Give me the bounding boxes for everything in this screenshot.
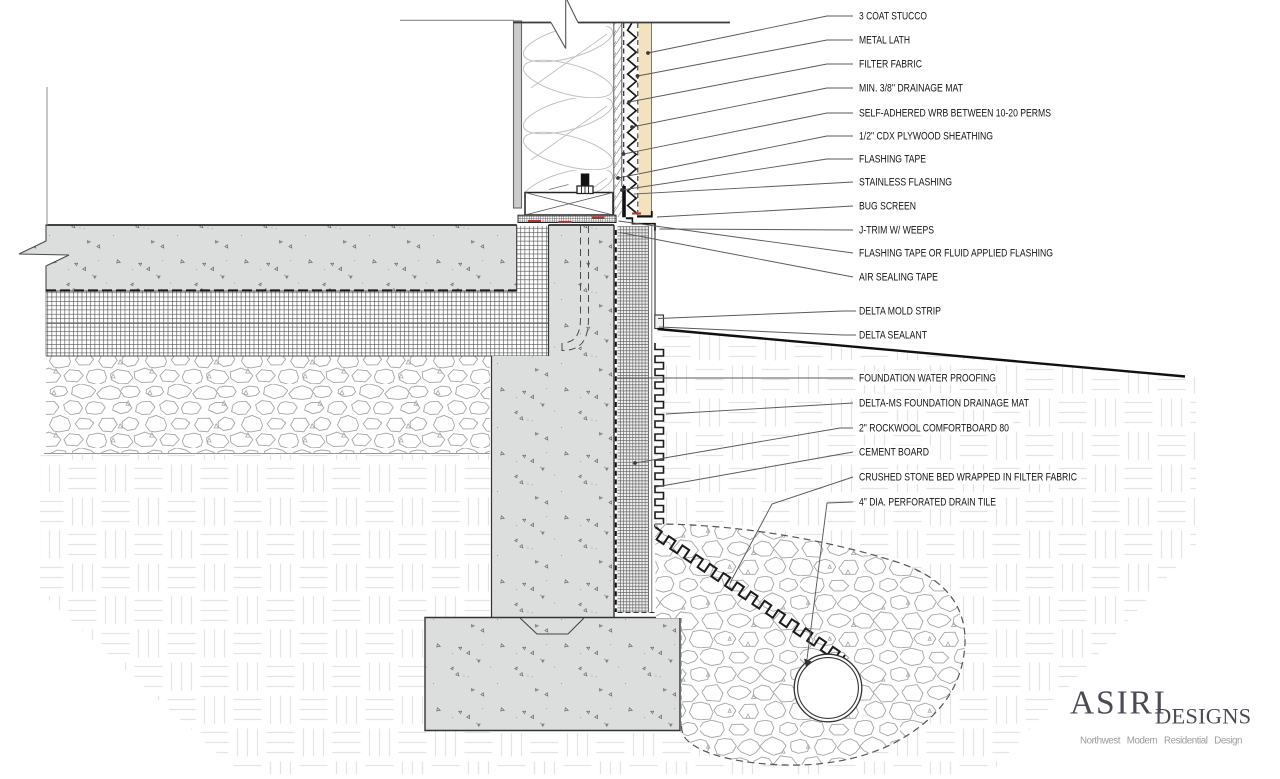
svg-text:ASIRI: ASIRI	[1070, 685, 1167, 722]
svg-text:FLASHING TAPE: FLASHING TAPE	[859, 154, 926, 166]
svg-text:Northwest Modern Residential D: Northwest Modern Residential Design	[1080, 736, 1243, 747]
svg-text:FOUNDATION WATER PROOFING: FOUNDATION WATER PROOFING	[859, 373, 996, 385]
svg-text:METAL LATH: METAL LATH	[859, 35, 910, 47]
svg-text:CEMENT BOARD: CEMENT BOARD	[859, 447, 929, 459]
svg-text:2" ROCKWOOL COMFORTBOARD 80: 2" ROCKWOOL COMFORTBOARD 80	[859, 423, 1009, 435]
svg-text:BUG SCREEN: BUG SCREEN	[859, 201, 916, 213]
svg-text:SELF-ADHERED WRB BETWEEN 10-20: SELF-ADHERED WRB BETWEEN 10-20 PERMS	[859, 108, 1051, 120]
svg-text:AIR SEALING TAPE: AIR SEALING TAPE	[859, 272, 938, 284]
svg-text:FLASHING TAPE OR FLUID APPLIED: FLASHING TAPE OR FLUID APPLIED FLASHING	[859, 248, 1053, 260]
svg-text:4" DIA. PERFORATED DRAIN TILE: 4" DIA. PERFORATED DRAIN TILE	[859, 497, 996, 509]
svg-text:1/2" CDX PLYWOOD SHEATHING: 1/2" CDX PLYWOOD SHEATHING	[859, 131, 993, 143]
svg-text:DESIGNS: DESIGNS	[1155, 704, 1252, 729]
svg-text:FILTER FABRIC: FILTER FABRIC	[859, 59, 922, 71]
svg-text:DELTA-MS FOUNDATION DRAINAGE M: DELTA-MS FOUNDATION DRAINAGE MAT	[859, 398, 1029, 410]
svg-text:J-TRIM W/ WEEPS: J-TRIM W/ WEEPS	[859, 225, 934, 237]
svg-text:CRUSHED STONE BED WRAPPED IN F: CRUSHED STONE BED WRAPPED IN FILTER FABR…	[859, 472, 1077, 484]
svg-text:DELTA SEALANT: DELTA SEALANT	[859, 330, 927, 342]
svg-text:MIN. 3/8" DRAINAGE MAT: MIN. 3/8" DRAINAGE MAT	[859, 83, 963, 95]
svg-text:STAINLESS FLASHING: STAINLESS FLASHING	[859, 177, 952, 189]
svg-text:DELTA MOLD STRIP: DELTA MOLD STRIP	[859, 306, 941, 318]
svg-text:3 COAT STUCCO: 3 COAT STUCCO	[859, 11, 927, 23]
